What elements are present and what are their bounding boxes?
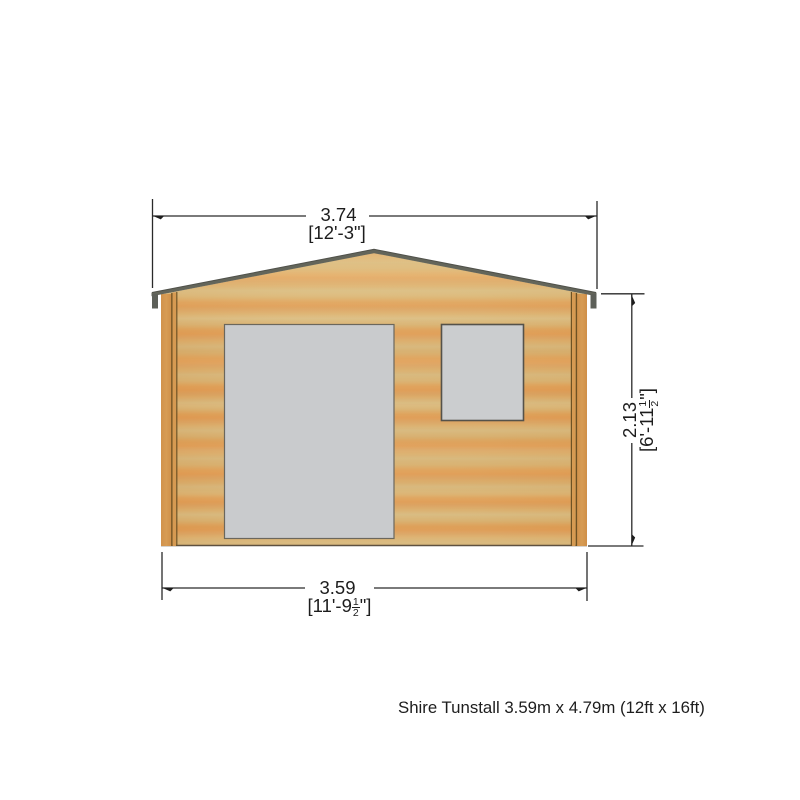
svg-text:[12'-3"]: [12'-3"] bbox=[308, 222, 365, 243]
svg-text:Shire Tunstall 3.59m x 4.79m (: Shire Tunstall 3.59m x 4.79m (12ft x 16f… bbox=[398, 698, 705, 717]
